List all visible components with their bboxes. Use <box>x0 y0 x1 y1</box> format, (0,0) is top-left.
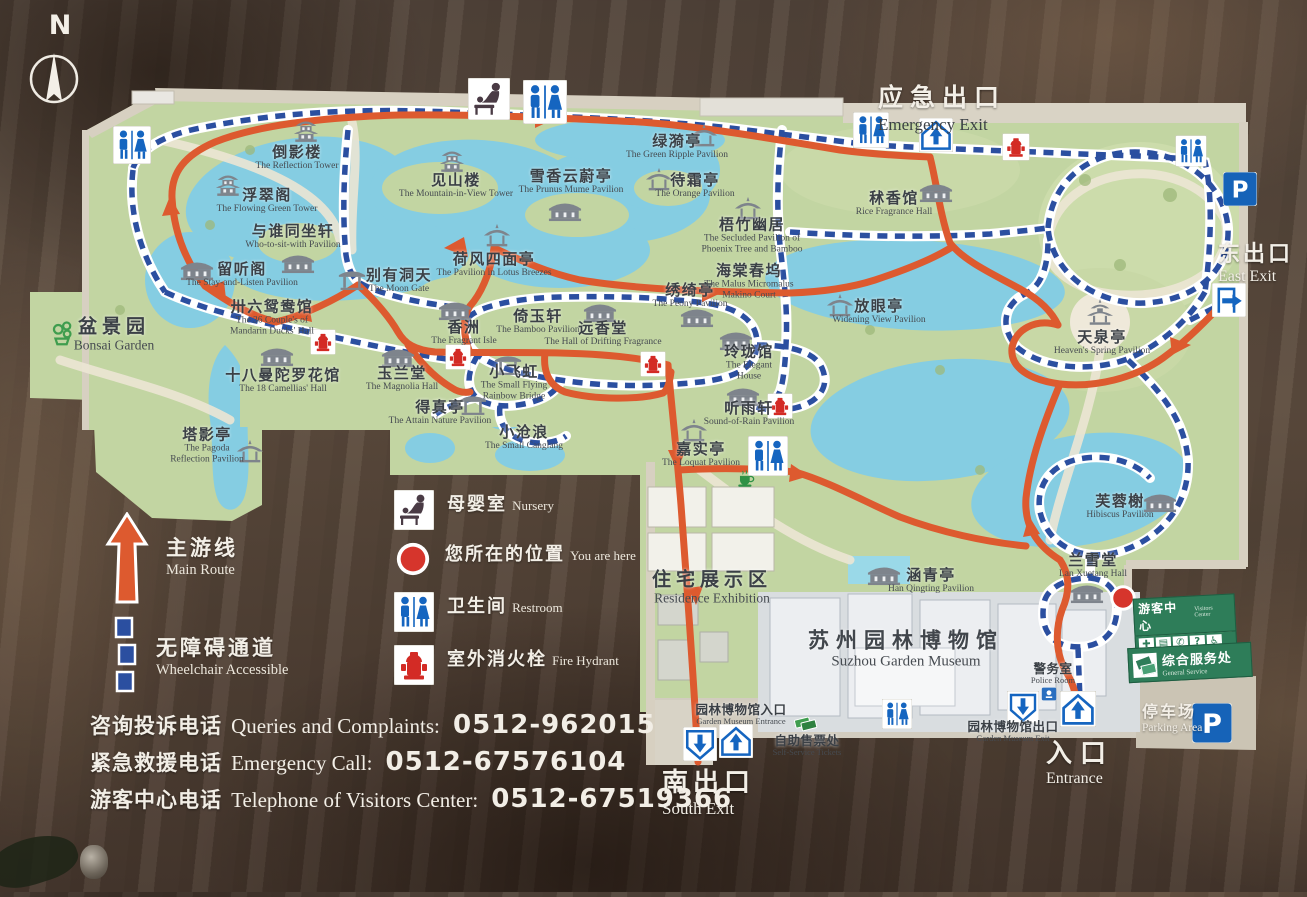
phone-visitor-center-number: 0512-67519366 <box>491 784 732 814</box>
map-label-en: The Fragrant Isle <box>431 336 496 347</box>
legend-fire-hydrant-en: Fire Hydrant <box>552 653 619 668</box>
map-label-en: Hibiscus Pavilion <box>1086 510 1153 521</box>
map-label-en2: Makino Court <box>704 290 793 301</box>
phone-emergency-en: Emergency Call: <box>231 751 372 775</box>
map-label-zh: 卅六鸳鸯馆 <box>230 299 314 316</box>
fire-hydrant-icon <box>394 645 434 685</box>
map-label: 倒影楼The Reflection Tower <box>255 144 338 172</box>
map-label: 涵青亭Han Qingting Pavilion <box>888 567 974 595</box>
map-label: 绿漪亭The Green Ripple Pavilion <box>626 133 728 161</box>
hall-building-icon <box>1070 577 1104 611</box>
map-label-zh: 绿漪亭 <box>626 133 728 150</box>
map-label-en: The Loquat Pavilion <box>662 458 740 469</box>
map-label-en: The Attain Nature Pavilion <box>389 416 492 427</box>
map-label-en: Rice Fragrance Hall <box>856 207 933 218</box>
map-label-en2: House <box>724 371 774 382</box>
map-label-zh: 兰雪堂 <box>1059 552 1127 569</box>
map-label-en: The Prunus Mume Pavilion <box>519 185 624 196</box>
map-label-en2: Phoenix Tree and Bamboo <box>701 244 802 255</box>
accessible-route-dash-icon <box>110 616 140 698</box>
map-label-zh: 梧竹幽居 <box>701 217 802 234</box>
pav2-building-icon <box>1086 299 1114 327</box>
map-label: 秫香馆Rice Fragrance Hall <box>856 190 933 218</box>
legend-wheelchair-en: Wheelchair Accessible <box>156 662 288 679</box>
map-label-zh: 苏州园林博物馆 <box>808 630 1004 654</box>
phone-emergency-zh: 紧急救援电话 <box>90 751 222 775</box>
map-label-en: The Flowing Green Tower <box>217 204 318 215</box>
phone-visitor-center-en: Telephone of Visitors Center: <box>231 788 478 812</box>
visitor-center-en: Visitors Center <box>1194 605 1231 619</box>
general-service-sign: 综合服务处 General Service <box>1127 642 1253 683</box>
map-label-zh: 见山楼 <box>399 172 513 189</box>
map-label: 听雨轩Sound-of-Rain Pavilion <box>704 400 795 428</box>
map-label: 见山楼The Mountain-in-View Tower <box>399 172 513 200</box>
map-label-zh: 盆景园 <box>74 317 155 338</box>
emergency-exit-en: Emergency Exit <box>878 115 1006 135</box>
parking-area-label: 停车场 Parking Area <box>1142 698 1202 734</box>
map-label-zh: 塔影亭 <box>170 427 244 444</box>
visitor-center-zh: 游客中心 <box>1138 598 1192 635</box>
map-label-en: Suzhou Garden Museum <box>808 653 1004 670</box>
legend-you-are-here: 您所在的位置 You are here <box>394 540 636 578</box>
legend-you-are-here-zh: 您所在的位置 <box>445 544 565 565</box>
map-label-en: The 36 Couple's of <box>230 315 314 326</box>
map-label-zh: 秫香馆 <box>856 190 933 207</box>
compass: N <box>24 10 84 115</box>
map-label: 盆景园Bonsai Garden <box>74 317 155 354</box>
main-route-arrow-icon <box>104 512 150 604</box>
map-label: 塔影亭The PagodaReflection Pavilion <box>170 427 244 466</box>
general-service-zh: 综合服务处 <box>1161 647 1232 670</box>
map-sign-board: P <box>0 0 1307 892</box>
map-label-en: The 18 Camellias' Hall <box>225 384 341 395</box>
map-label: 小沧浪The Small Canglang <box>485 424 563 452</box>
map-label: 远香堂The Hall of Drifting Fragrance <box>544 320 661 348</box>
phone-emergency-number: 0512-67576104 <box>386 747 627 777</box>
parking-icon <box>1223 172 1257 206</box>
map-label-zh: 十八曼陀罗花馆 <box>225 367 341 384</box>
legend-restroom-zh: 卫生间 <box>447 596 507 617</box>
map-label-en: The Reflection Tower <box>255 161 338 172</box>
map-label: 浮翠阁The Flowing Green Tower <box>217 187 318 215</box>
map-label: 玉兰堂The Magnolia Hall <box>366 365 438 393</box>
gate-building-icon <box>338 265 366 293</box>
entrance-zh: 入口 <box>1046 733 1114 770</box>
phone-visitor-center-zh: 游客中心电话 <box>90 788 222 812</box>
map-label-en2: Mandarin Ducks' Hall <box>230 326 314 337</box>
emergency-exit-label: 应急出口 Emergency Exit <box>878 78 1006 135</box>
map-label: 与谁同坐轩Who-to-sit-with Pavilion <box>245 223 340 251</box>
map-label-zh: 小沧浪 <box>485 424 563 441</box>
map-label-en: The Hall of Drifting Fragrance <box>544 337 661 348</box>
teacup-icon <box>735 468 758 491</box>
map-label-zh: 住宅展示区 <box>652 570 772 591</box>
map-label: 自助售票处Self-Service Tickets <box>773 734 842 758</box>
map-label-en: The Pavilion in Lotus Breezes <box>436 268 551 279</box>
map-label: 天泉亭Heaven's Spring Pavilion <box>1054 329 1150 357</box>
map-label-en: Self-Service Tickets <box>773 748 842 758</box>
map-label-en: The Magnolia Hall <box>366 382 438 393</box>
hand-card-icon <box>1132 652 1157 677</box>
map-label: 小飞虹The Small FlyingRainbow Bridge <box>481 364 548 403</box>
map-label-en: The Small Flying <box>481 380 548 391</box>
legend-wheelchair-zh: 无障碍通道 <box>156 632 288 662</box>
map-label-zh: 警务室 <box>1031 662 1075 676</box>
map-label: 别有洞天The Moon Gate <box>366 267 432 295</box>
wc-icon <box>523 80 567 124</box>
board-bolt <box>80 845 108 879</box>
map-label-en: The Pagoda <box>170 443 244 454</box>
map-label: 警务室Police Room <box>1031 662 1075 686</box>
exitup-icon <box>1060 691 1096 727</box>
map-label-zh: 听雨轩 <box>704 400 795 417</box>
phone-complaints-en: Queries and Complaints: <box>231 714 440 738</box>
legend-main-route-zh: 主游线 <box>166 532 238 562</box>
map-label: 放眼亭Widening View Pavilion <box>832 298 925 326</box>
map-label-zh: 留听阁 <box>186 261 298 278</box>
map-label-en: Han Qingting Pavilion <box>888 584 974 595</box>
map-label-zh: 嘉实亭 <box>662 441 740 458</box>
map-label-zh: 玲珑馆 <box>724 344 774 361</box>
map-label-zh: 浮翠阁 <box>217 187 318 204</box>
hall-building-icon <box>548 195 582 229</box>
map-label-zh: 别有洞天 <box>366 267 432 284</box>
compass-north-label: N <box>36 10 84 41</box>
nursery-icon <box>394 490 434 530</box>
map-label: 香洲The Fragrant Isle <box>431 319 496 347</box>
map-label: 海棠春坞The Malus MicromalusMakino Court <box>704 263 793 302</box>
map-label-zh: 得真亭 <box>389 399 492 416</box>
map-label-en: Sound-of-Rain Pavilion <box>704 417 795 428</box>
map-label: 卅六鸳鸯馆The 36 Couple's ofMandarin Ducks' H… <box>230 299 314 338</box>
map-label-en: The Moon Gate <box>366 284 432 295</box>
legend-main-route: 主游线 Main Route <box>104 512 238 604</box>
map-label: 留听阁The Stay-and-Listen Pavilion <box>186 261 298 289</box>
compass-rose-icon <box>24 41 84 111</box>
map-label-en: The Green Ripple Pavilion <box>626 150 728 161</box>
map-label: 芙蓉榭Hibiscus Pavilion <box>1086 493 1153 521</box>
exitright-icon <box>1212 283 1246 317</box>
legend-main-route-en: Main Route <box>166 562 238 579</box>
map-label: 园林博物馆出口Garden Museum Exit <box>967 720 1058 744</box>
map-label-zh: 海棠春坞 <box>704 263 793 280</box>
map-label: 玲珑馆The ElegantHouse <box>724 344 774 383</box>
map-label-zh: 与谁同坐轩 <box>245 223 340 240</box>
legend-you-are-here-en: You are here <box>570 548 636 563</box>
map-label-zh: 园林博物馆出口 <box>967 720 1058 734</box>
east-exit-en: East Exit <box>1218 268 1293 286</box>
map-label-en: Heaven's Spring Pavilion <box>1054 346 1150 357</box>
phone-line-complaints: 咨询投诉电话 Queries and Complaints: 0512-9620… <box>90 710 732 740</box>
hydrant-icon <box>446 345 471 370</box>
map-label: 得真亭The Attain Nature Pavilion <box>389 399 492 427</box>
map-label-zh: 玉兰堂 <box>366 365 438 382</box>
map-label-zh: 放眼亭 <box>832 298 925 315</box>
tower-building-icon <box>292 118 320 146</box>
map-label: 梧竹幽居The Secluded Pavilion ofPhoenix Tree… <box>701 217 802 256</box>
legend-restroom-en: Restroom <box>512 600 563 615</box>
nursery-icon <box>468 78 510 120</box>
legend-wheelchair: 无障碍通道 Wheelchair Accessible <box>110 616 288 698</box>
badge-icon <box>1041 686 1057 702</box>
map-label-en: Bonsai Garden <box>74 338 155 354</box>
map-label-zh: 自助售票处 <box>773 734 842 748</box>
map-label-en: Garden Museum Exit <box>967 734 1058 744</box>
map-label-en: Widening View Pavilion <box>832 315 925 326</box>
wc-icon <box>882 699 912 729</box>
legend-restroom: 卫生间 Restroom <box>394 592 563 632</box>
map-label: 住宅展示区Residence Exhibition <box>652 570 772 607</box>
legend-nursery-zh: 母婴室 <box>447 494 507 515</box>
parking-zh: 停车场 <box>1142 698 1202 722</box>
map-label-en: The Stay-and-Listen Pavilion <box>186 278 298 289</box>
map-label-en: The Orange Pavilion <box>655 189 734 200</box>
legend-fire-hydrant: 室外消火栓 Fire Hydrant <box>394 645 619 685</box>
east-exit-zh: 东出口 <box>1218 236 1293 268</box>
phone-complaints-number: 0512-962015 <box>453 710 656 740</box>
map-label-en: Police Room <box>1031 676 1075 686</box>
map-label-zh: 涵青亭 <box>888 567 974 584</box>
map-label-zh: 芙蓉榭 <box>1086 493 1153 510</box>
map-label-en: The Mountain-in-View Tower <box>399 189 513 200</box>
map-label-zh: 香洲 <box>431 319 496 336</box>
parking-en: Parking Area <box>1142 722 1202 734</box>
hydrant-icon <box>311 330 336 355</box>
map-label-en: The Small Canglang <box>485 441 563 452</box>
map-label-en: The Elegant <box>724 360 774 371</box>
map-label: 荷风四面亭The Pavilion in Lotus Breezes <box>436 251 551 279</box>
emergency-exit-zh: 应急出口 <box>878 78 1006 114</box>
map-label-zh: 倒影楼 <box>255 144 338 161</box>
map-label: 苏州园林博物馆Suzhou Garden Museum <box>808 630 1004 671</box>
map-label-en: The Malus Micromalus <box>704 279 793 290</box>
east-exit-label: 东出口 East Exit <box>1218 236 1293 286</box>
wc-icon <box>1176 136 1207 167</box>
pav-building-icon <box>483 222 511 250</box>
restroom-icon <box>394 592 434 632</box>
map-label-en: Residence Exhibition <box>652 591 772 607</box>
entrance-label: 入口 Entrance <box>1046 733 1114 788</box>
map-label: 雪香云蔚亭The Prunus Mume Pavilion <box>519 168 624 196</box>
map-label: 兰雪堂Lan Xuetang Hall <box>1059 552 1127 580</box>
phone-line-visitor-center: 游客中心电话 Telephone of Visitors Center: 051… <box>90 784 732 814</box>
phone-complaints-zh: 咨询投诉电话 <box>90 714 222 738</box>
map-label-zh: 雪香云蔚亭 <box>519 168 624 185</box>
map-label-zh: 待霜亭 <box>655 172 734 189</box>
legend-fire-hydrant-zh: 室外消火栓 <box>447 649 547 670</box>
legend-nursery-en: Nursery <box>512 498 554 513</box>
hydrant-icon <box>1003 134 1030 161</box>
you-are-here-icon <box>394 540 432 578</box>
map-label-en: Who-to-sit-with Pavilion <box>245 240 340 251</box>
phone-info: 咨询投诉电话 Queries and Complaints: 0512-9620… <box>90 710 732 821</box>
legend-nursery: 母婴室 Nursery <box>394 490 554 530</box>
map-label-en: Lan Xuetang Hall <box>1059 569 1127 580</box>
map-label-zh: 小飞虹 <box>481 364 548 381</box>
map-label: 待霜亭The Orange Pavilion <box>655 172 734 200</box>
hydrant-icon <box>641 352 666 377</box>
map-label-zh: 远香堂 <box>544 320 661 337</box>
wc-icon <box>113 126 151 164</box>
map-label-zh: 天泉亭 <box>1054 329 1150 346</box>
map-label: 十八曼陀罗花馆The 18 Camellias' Hall <box>225 367 341 395</box>
map-label-en2: Reflection Pavilion <box>170 454 244 465</box>
bonsai-building-icon <box>48 319 76 347</box>
map-label-zh: 荷风四面亭 <box>436 251 551 268</box>
phone-line-emergency: 紧急救援电话 Emergency Call: 0512-67576104 <box>90 747 732 777</box>
entrance-en: Entrance <box>1046 770 1114 788</box>
map-label-en: The Secluded Pavilion of <box>701 233 802 244</box>
map-label: 嘉实亭The Loquat Pavilion <box>662 441 740 469</box>
